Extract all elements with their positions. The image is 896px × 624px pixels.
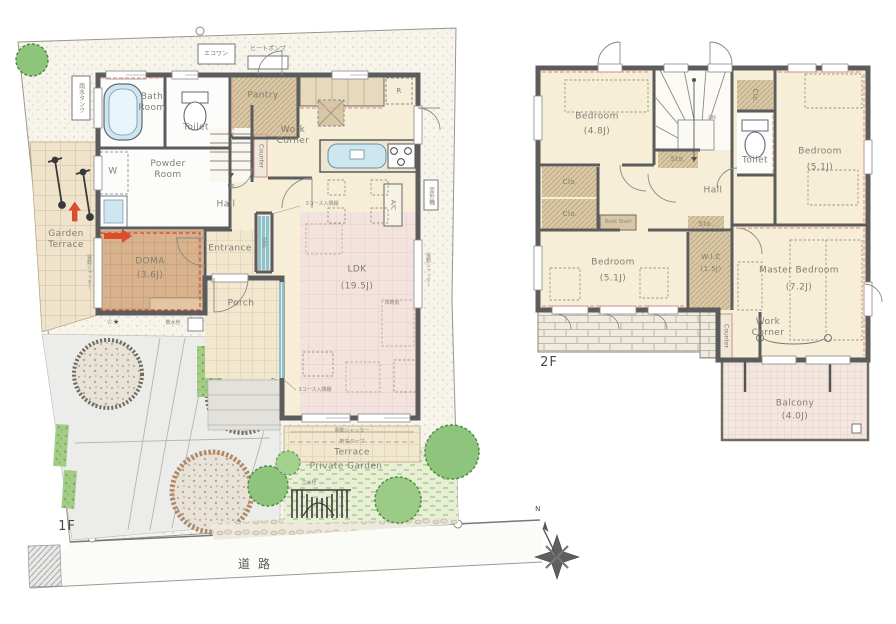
work-corner1-label: Work Corner bbox=[270, 125, 316, 147]
sto-hall-label: Sto. bbox=[698, 220, 713, 228]
master-label: Master Bedroom bbox=[759, 266, 839, 277]
bedroom-b-size-label: (5.1J) bbox=[807, 163, 833, 174]
master-size-label: (7.2J) bbox=[786, 283, 812, 294]
hall1-label: Hall bbox=[217, 200, 236, 211]
star-marks: ☆★ bbox=[106, 318, 119, 326]
wic-size-label: (1.5J) bbox=[700, 265, 721, 273]
awning-label: 軒先タープ bbox=[340, 439, 365, 445]
bedroom-a-size-label: (4.8J) bbox=[584, 127, 610, 138]
floor1-label: 1F bbox=[58, 519, 76, 535]
roof-below bbox=[538, 312, 720, 352]
garden-terrace-label: Garden Terrace bbox=[37, 229, 95, 251]
bath-label: Bath Room bbox=[130, 92, 174, 114]
floor-heating-label: 床暖房 bbox=[384, 300, 399, 306]
balcony-label: Balcony bbox=[776, 399, 814, 410]
ldk-size-label: (19.5J) bbox=[341, 282, 374, 293]
private-garden-label: Private Garden bbox=[310, 462, 383, 473]
pantry-label: Pantry bbox=[247, 91, 278, 102]
terrace-shutter-label: 電動シャッター bbox=[334, 428, 369, 434]
terrace-label: Terrace bbox=[334, 448, 370, 459]
floor2-label: 2F bbox=[540, 355, 558, 371]
outdoor-unit-label: 室外機 bbox=[427, 187, 434, 205]
bedroom-a-label: Bedroom bbox=[575, 112, 619, 123]
dn-label: DN bbox=[708, 115, 716, 121]
bedroom-c-label: Bedroom bbox=[591, 258, 635, 269]
counter1-label: Counter bbox=[257, 144, 264, 168]
work-corner2-label: Work Corner bbox=[744, 317, 792, 339]
doma-label: DOMA bbox=[135, 257, 165, 268]
wic-label: W.I.C bbox=[701, 253, 721, 261]
vanity-icon bbox=[100, 196, 127, 227]
porch-label: Porch bbox=[228, 299, 255, 310]
tap-label: 立水栓 bbox=[301, 480, 316, 486]
heat-pump-label: ヒートポンプ bbox=[250, 45, 286, 52]
sto-stairs-label: Sto. bbox=[670, 155, 685, 163]
entrance-label: Entrance bbox=[208, 244, 252, 255]
compass-icon bbox=[535, 521, 579, 579]
balcony-size-label: (4.0J) bbox=[782, 412, 808, 423]
toilet1-label: Toilet bbox=[183, 123, 209, 134]
corner-shelf-upper-label: 3コース入隅棚 bbox=[306, 201, 339, 207]
up-label: UP bbox=[228, 184, 235, 190]
north-label: N bbox=[535, 505, 541, 513]
book-shelf-label: Book Shelf bbox=[605, 219, 632, 225]
bedroom-b-label: Bedroom bbox=[798, 147, 842, 158]
corner-shelf-lower-label: 3コース入隅棚 bbox=[299, 387, 332, 393]
toilet2-label: Toilet bbox=[742, 156, 768, 167]
shutter-left-label: 電動シャッター bbox=[86, 255, 92, 290]
sto1-label: Sto. bbox=[260, 237, 267, 249]
counter2-label: Counter bbox=[722, 324, 729, 348]
road-label: 道路 bbox=[238, 557, 278, 571]
hall2-label: Hall bbox=[704, 186, 723, 197]
clo-b-label: Clo. bbox=[563, 210, 578, 218]
ldk-label: LDK bbox=[347, 265, 366, 276]
ac-label: A/C bbox=[389, 200, 396, 210]
floorplan-canvas: エコワン ヒートポンプ 雨水タンク Garden Terrace 電動シャッター… bbox=[0, 0, 896, 624]
fridge-label: R bbox=[396, 87, 401, 95]
washer-label: W bbox=[108, 167, 117, 178]
clo-c-label: Clo. bbox=[751, 89, 759, 104]
doma-size-label: (3.6J) bbox=[137, 271, 163, 282]
powder-label: Powder Room bbox=[141, 159, 195, 181]
shutter-right-label: 電動シャッター bbox=[425, 253, 431, 288]
eco-one-label: エコワン bbox=[204, 50, 228, 57]
sprinkler-label: 散水栓 bbox=[165, 320, 180, 326]
floor2-plan bbox=[534, 42, 882, 440]
bedroom-c-size-label: (5.1J) bbox=[600, 274, 626, 285]
clo-a-label: Clo. bbox=[563, 178, 578, 186]
rain-tank-label: 雨水タンク bbox=[77, 83, 84, 113]
